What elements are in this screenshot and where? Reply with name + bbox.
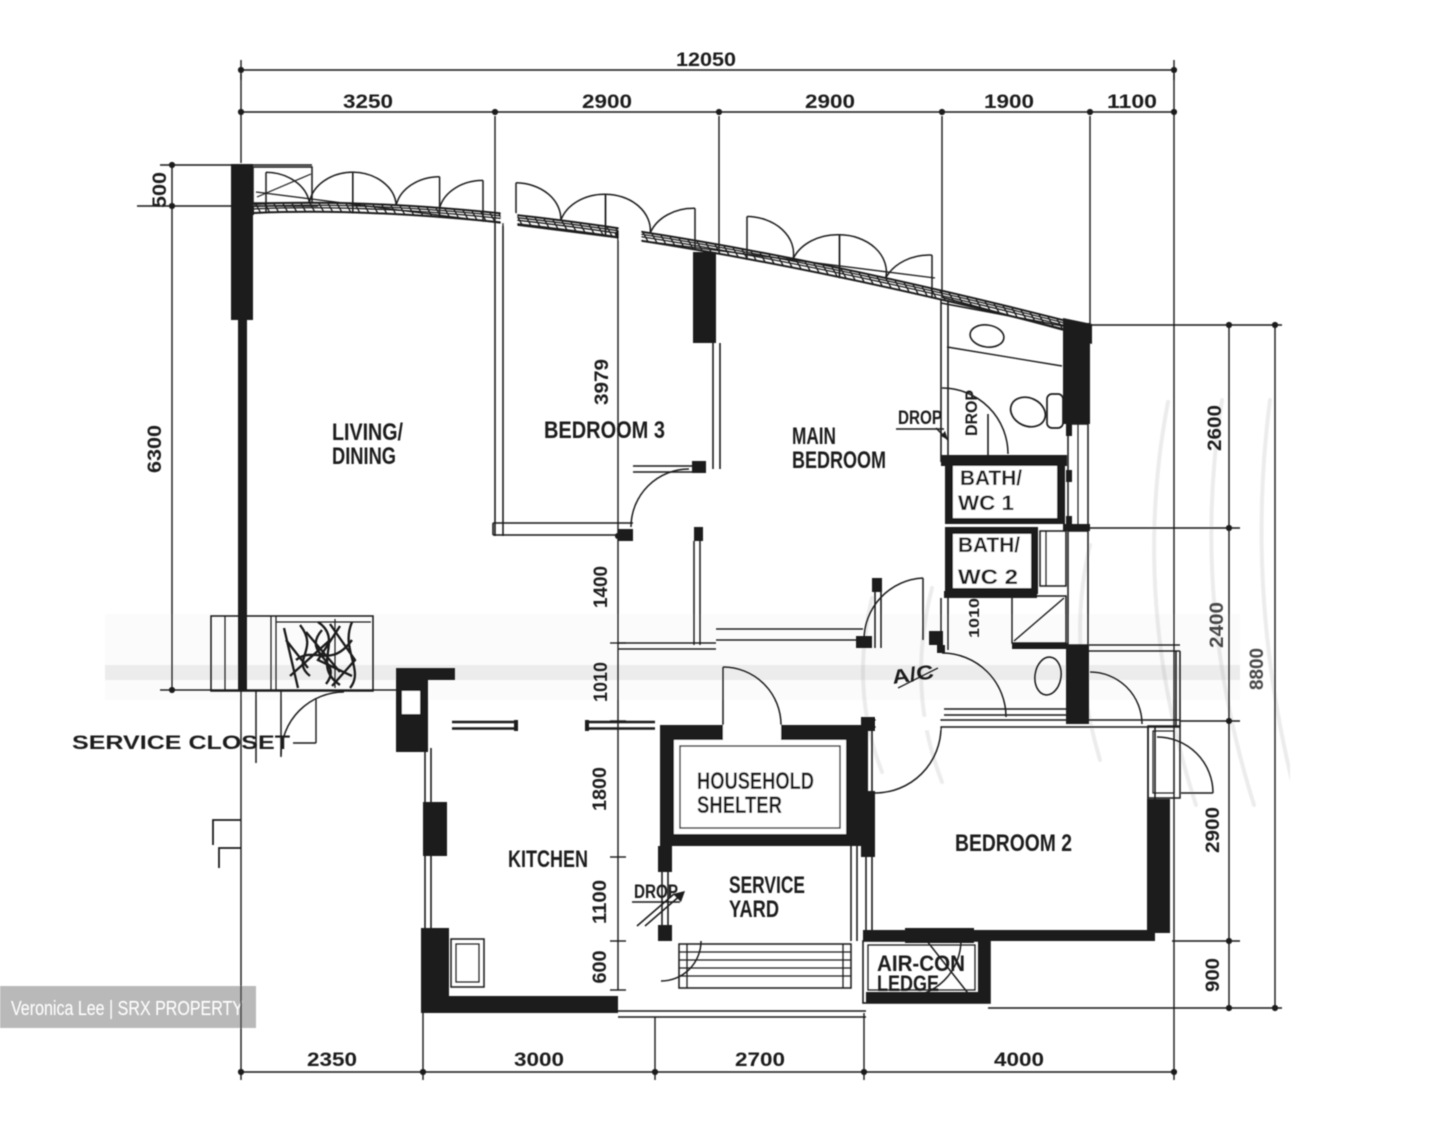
- svg-text:500: 500: [150, 172, 171, 208]
- svg-text:1900: 1900: [984, 92, 1034, 113]
- svg-text:4000: 4000: [994, 1050, 1044, 1071]
- svg-text:1010: 1010: [966, 598, 983, 638]
- svg-text:12050: 12050: [676, 50, 736, 71]
- svg-text:DINING: DINING: [332, 443, 396, 470]
- svg-text:2900: 2900: [1203, 807, 1224, 853]
- svg-text:2400: 2400: [1207, 602, 1228, 648]
- svg-text:BATH/: BATH/: [958, 534, 1020, 557]
- svg-text:1100: 1100: [1107, 92, 1157, 113]
- svg-text:SERVICE CLOSET: SERVICE CLOSET: [72, 733, 291, 754]
- svg-text:1100: 1100: [590, 880, 611, 924]
- svg-text:3000: 3000: [514, 1050, 564, 1071]
- svg-text:900: 900: [1203, 958, 1224, 992]
- svg-text:WC 1: WC 1: [958, 492, 1014, 515]
- svg-text:2700: 2700: [735, 1050, 785, 1071]
- svg-text:HOUSEHOLD: HOUSEHOLD: [697, 768, 814, 795]
- svg-text:3250: 3250: [343, 92, 393, 113]
- svg-text:Veronica Lee | SRX PROPERTY: Veronica Lee | SRX PROPERTY: [11, 998, 243, 1020]
- svg-text:2900: 2900: [582, 92, 632, 113]
- svg-text:2350: 2350: [307, 1050, 357, 1071]
- svg-text:2600: 2600: [1205, 405, 1226, 451]
- svg-text:3979: 3979: [592, 359, 613, 405]
- svg-text:BEDROOM: BEDROOM: [792, 447, 886, 474]
- svg-text:8800: 8800: [1247, 648, 1268, 690]
- svg-text:KITCHEN: KITCHEN: [508, 846, 588, 873]
- svg-text:DROP: DROP: [898, 408, 942, 429]
- svg-text:BEDROOM 2: BEDROOM 2: [955, 830, 1072, 857]
- svg-text:2900: 2900: [805, 92, 855, 113]
- svg-text:BEDROOM 3: BEDROOM 3: [544, 417, 665, 444]
- svg-text:1800: 1800: [590, 767, 611, 811]
- svg-text:DROP: DROP: [962, 390, 981, 436]
- svg-text:600: 600: [590, 951, 611, 984]
- svg-text:MAIN: MAIN: [792, 423, 836, 450]
- svg-text:6300: 6300: [145, 425, 166, 473]
- svg-text:YARD: YARD: [729, 896, 779, 923]
- svg-text:1400: 1400: [591, 566, 612, 608]
- svg-text:LIVING/: LIVING/: [332, 419, 403, 446]
- svg-text:SHELTER: SHELTER: [697, 792, 782, 819]
- svg-text:DROP: DROP: [634, 882, 678, 903]
- svg-text:WC 2: WC 2: [958, 566, 1018, 589]
- svg-text:LEDGE: LEDGE: [877, 971, 939, 996]
- svg-text:SERVICE: SERVICE: [729, 872, 805, 899]
- svg-text:BATH/: BATH/: [960, 467, 1022, 490]
- svg-text:1010: 1010: [591, 662, 612, 702]
